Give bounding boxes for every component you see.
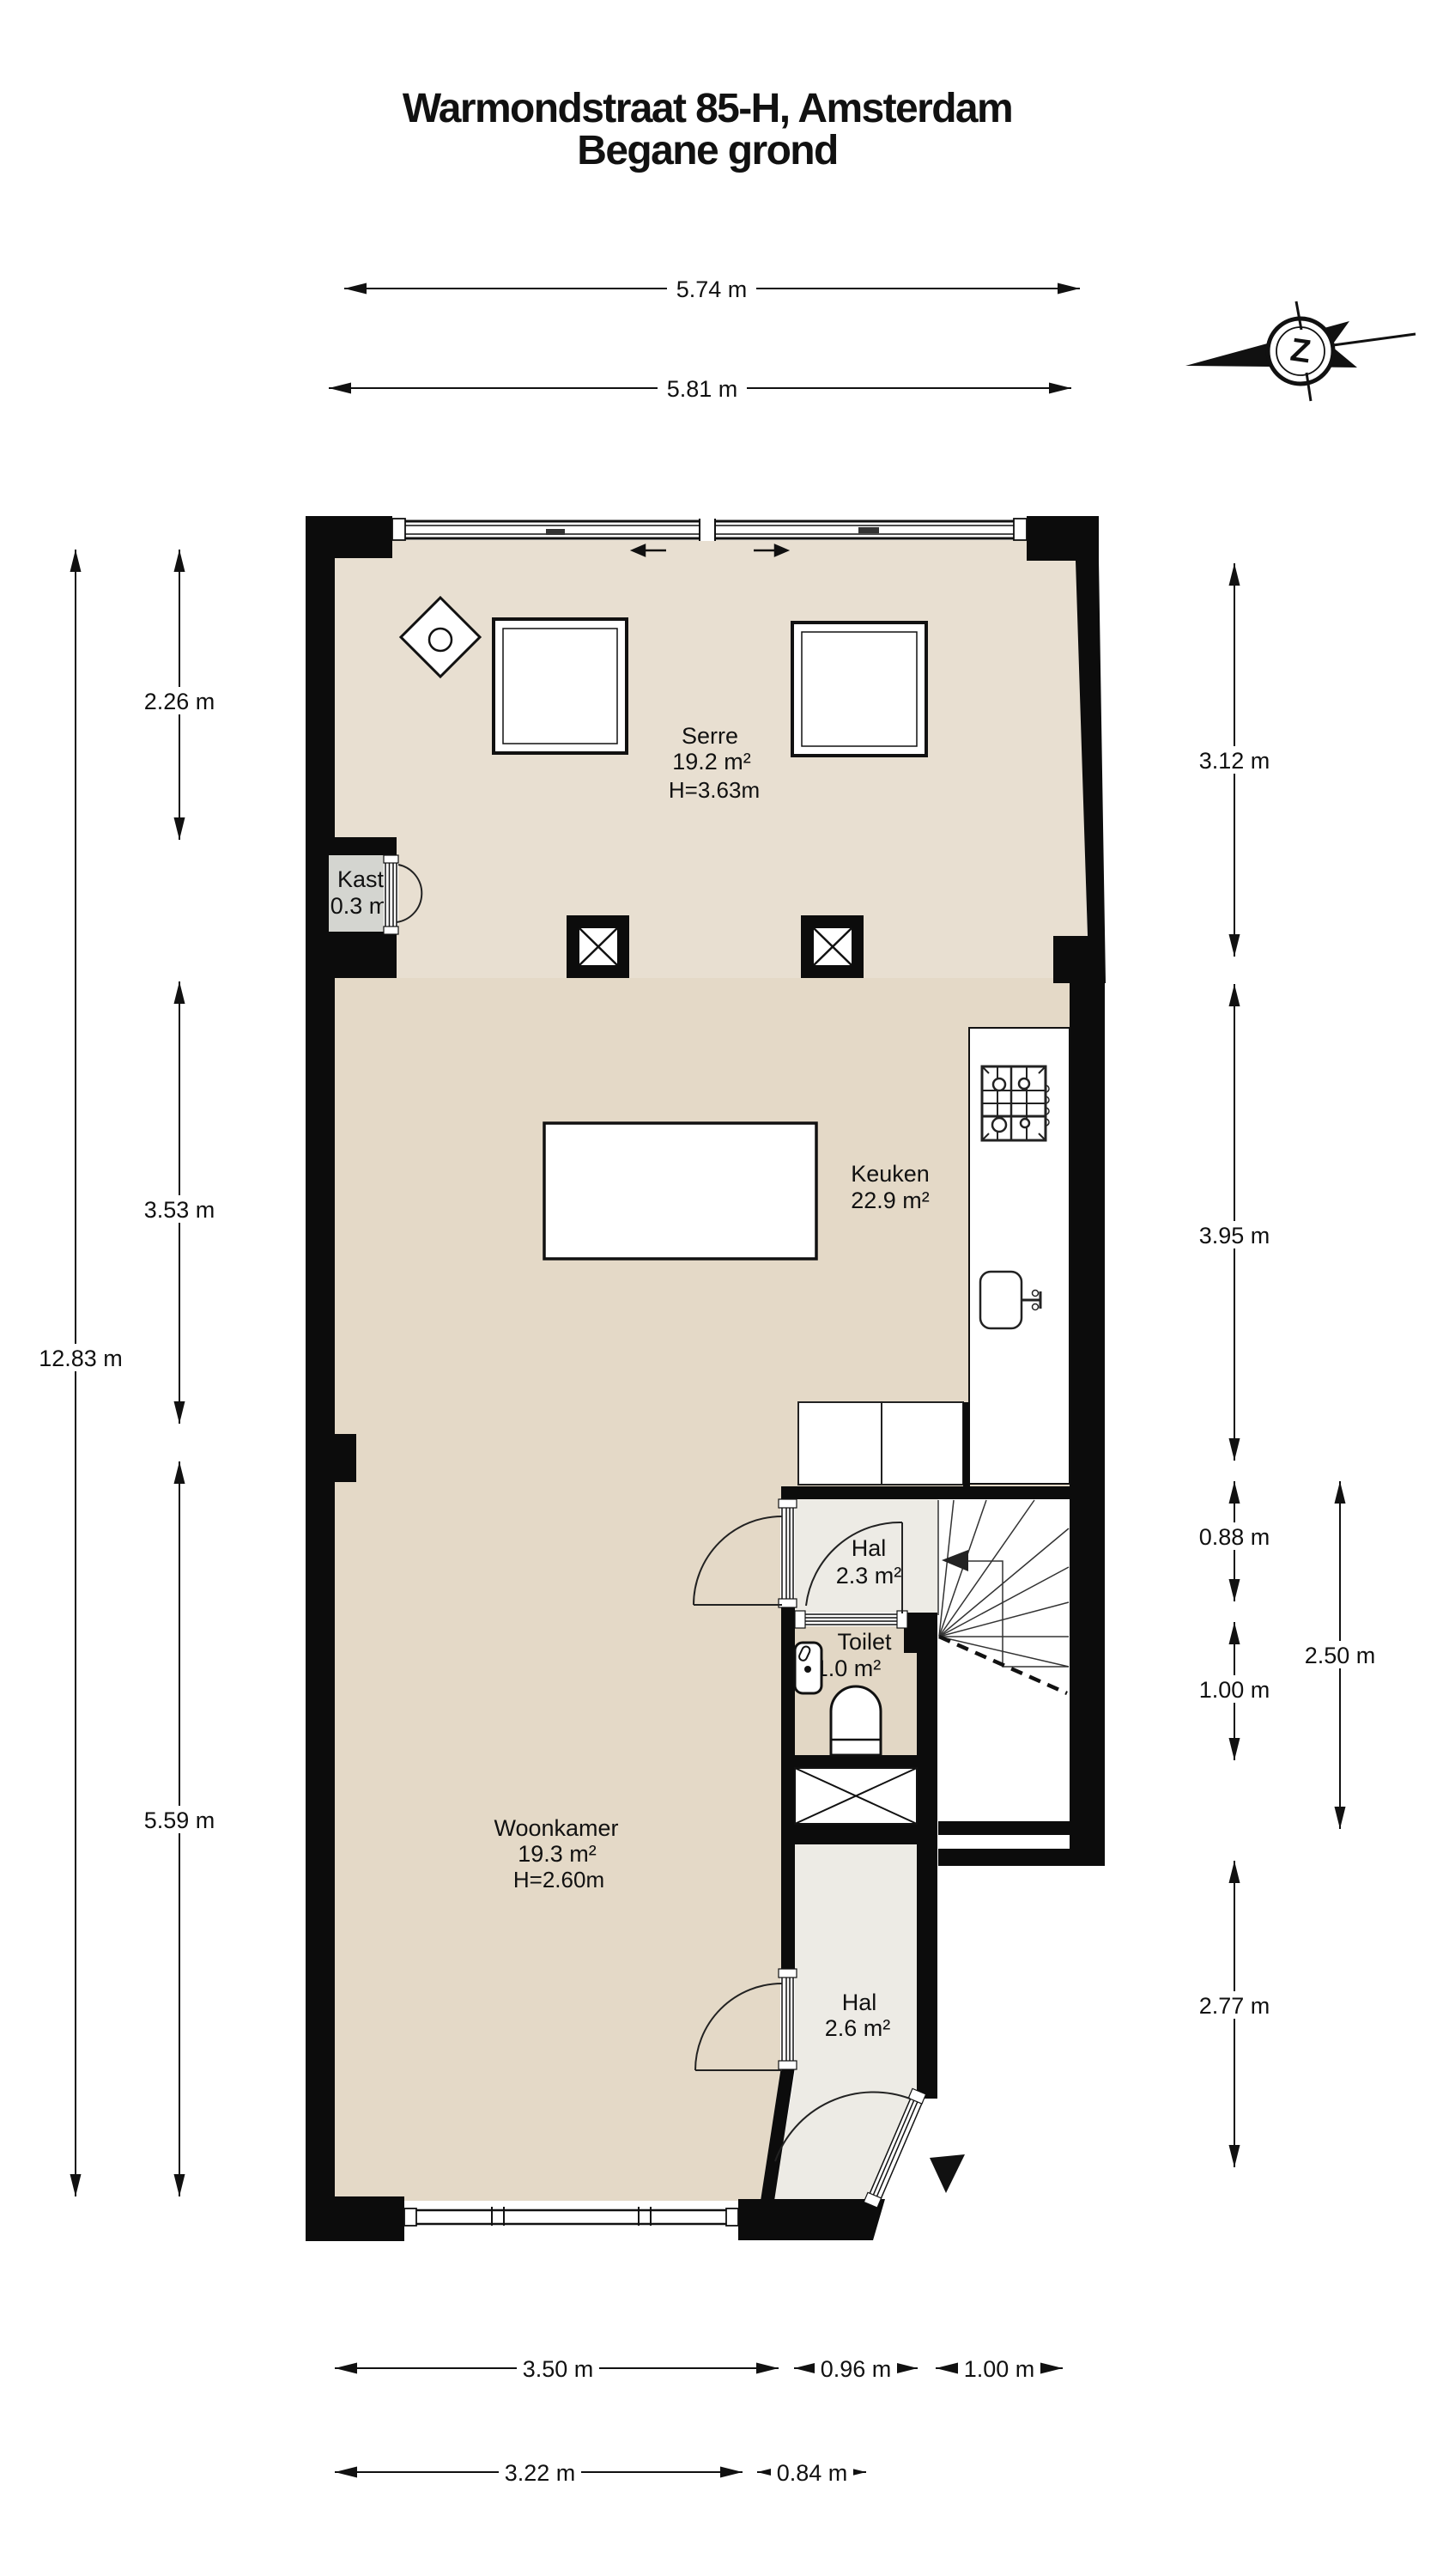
svg-text:Warmondstraat 85-H, Amsterdam: Warmondstraat 85-H, Amsterdam (403, 86, 1012, 131)
svg-text:3.22 m: 3.22 m (505, 2460, 576, 2486)
svg-text:3.53 m: 3.53 m (144, 1197, 215, 1223)
svg-text:H=3.63m: H=3.63m (669, 777, 760, 803)
svg-text:Begane grond: Begane grond (577, 128, 838, 173)
svg-text:3.95 m: 3.95 m (1199, 1223, 1270, 1249)
svg-text:3.50 m: 3.50 m (523, 2356, 594, 2382)
svg-text:12.83 m: 12.83 m (39, 1346, 123, 1371)
svg-text:2.26 m: 2.26 m (144, 689, 215, 714)
svg-text:2.3 m²: 2.3 m² (836, 1563, 902, 1589)
svg-text:Serre: Serre (682, 723, 738, 749)
svg-text:3.12 m: 3.12 m (1199, 748, 1270, 774)
svg-text:Keuken: Keuken (851, 1161, 930, 1187)
svg-text:19.3 m²: 19.3 m² (518, 1841, 597, 1867)
svg-text:Toilet: Toilet (837, 1629, 892, 1655)
svg-text:2.77 m: 2.77 m (1199, 1993, 1270, 2019)
svg-text:1.0 m²: 1.0 m² (815, 1656, 882, 1681)
svg-text:19.2 m²: 19.2 m² (672, 749, 751, 775)
svg-text:Woonkamer: Woonkamer (494, 1815, 618, 1841)
svg-text:5.81 m: 5.81 m (667, 376, 738, 402)
svg-text:0.88 m: 0.88 m (1199, 1524, 1270, 1550)
svg-text:0.96 m: 0.96 m (821, 2356, 892, 2382)
svg-text:Hal: Hal (852, 1535, 887, 1561)
svg-text:22.9 m²: 22.9 m² (851, 1188, 930, 1213)
svg-text:Hal: Hal (842, 1990, 877, 2015)
svg-text:2.6 m²: 2.6 m² (825, 2015, 891, 2041)
svg-text:5.59 m: 5.59 m (144, 1807, 215, 1833)
svg-text:H=2.60m: H=2.60m (513, 1867, 604, 1893)
svg-text:2.50 m: 2.50 m (1305, 1643, 1376, 1668)
svg-text:5.74 m: 5.74 m (676, 276, 748, 302)
svg-text:1.00 m: 1.00 m (1199, 1677, 1270, 1703)
svg-text:1.00 m: 1.00 m (964, 2356, 1035, 2382)
svg-text:0.84 m: 0.84 m (777, 2460, 848, 2486)
svg-text:Kast: Kast (337, 866, 385, 892)
